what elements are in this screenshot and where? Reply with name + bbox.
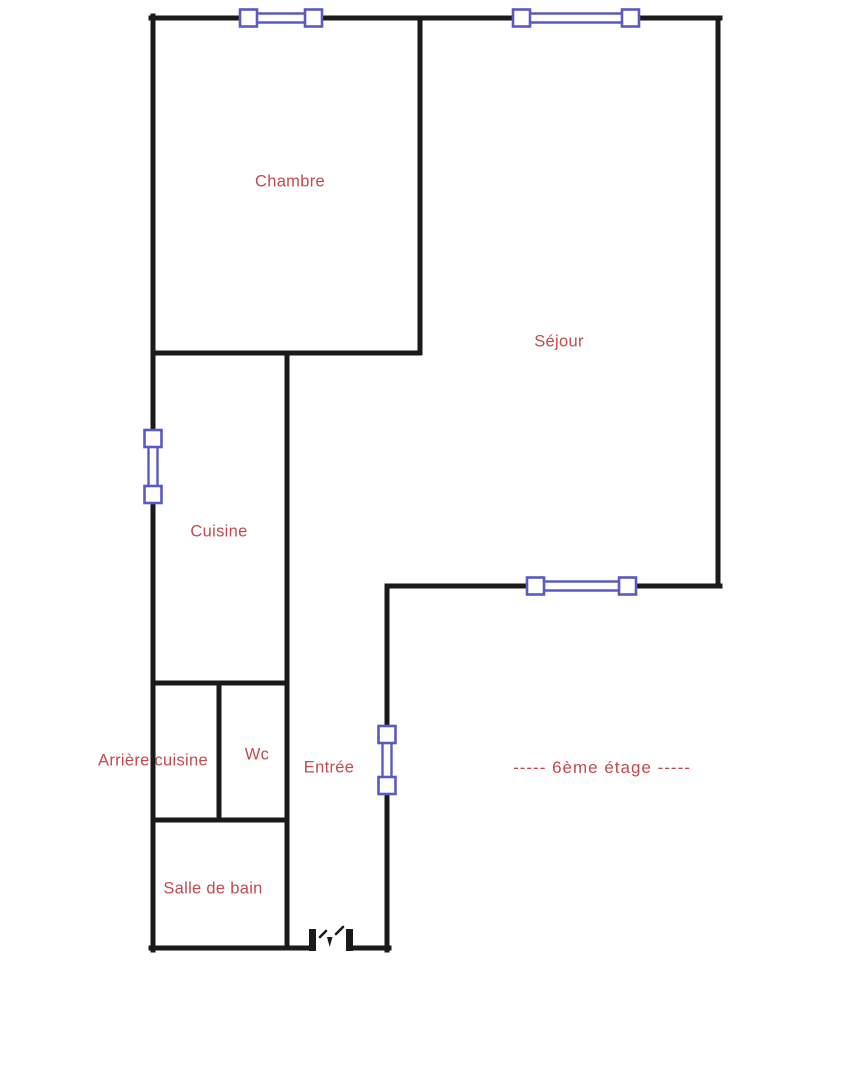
floor-plan: Chambre Séjour Cuisine Arrière cuisine W… [0,0,848,1080]
window-icon-entree [379,726,396,794]
room-label-cuisine: Cuisine [190,523,247,542]
entrance-door-icon [309,927,353,951]
floor-plan-drawing [0,0,848,1080]
window-icon-sejour-bottom [527,578,636,595]
walls [151,16,720,950]
room-label-wc: Wc [245,746,269,765]
window-icon-top-left [240,10,322,27]
room-label-sejour: Séjour [534,333,584,352]
room-label-chambre: Chambre [255,173,325,192]
window-icon-cuisine-left [145,430,162,503]
room-label-arriere-cuisine: Arrière cuisine [98,752,208,771]
room-label-salle-de-bain: Salle de bain [163,880,262,899]
room-label-entree: Entrée [304,759,354,778]
window-icon-top-right [513,10,639,27]
floor-label: ----- 6ème étage ----- [513,758,691,778]
